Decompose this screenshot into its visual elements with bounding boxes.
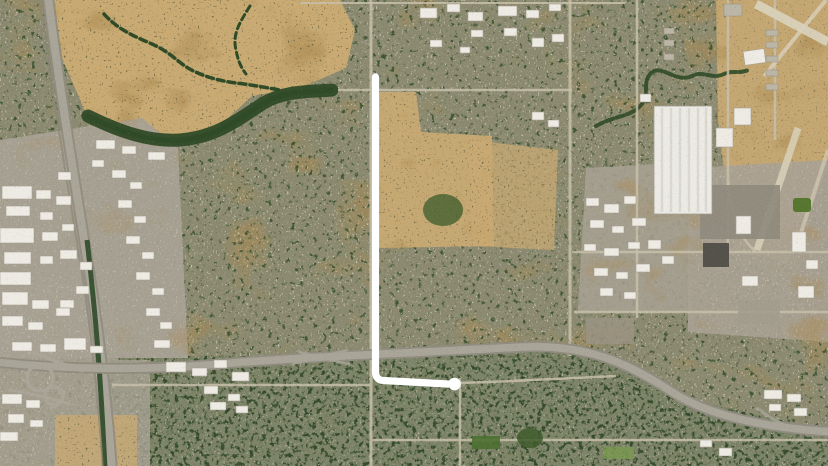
satellite-map-canvas[interactable]: [0, 0, 828, 466]
satellite-map[interactable]: [0, 0, 828, 466]
imagery-grain: [0, 0, 828, 466]
route-annotation-endcap: [448, 378, 461, 391]
